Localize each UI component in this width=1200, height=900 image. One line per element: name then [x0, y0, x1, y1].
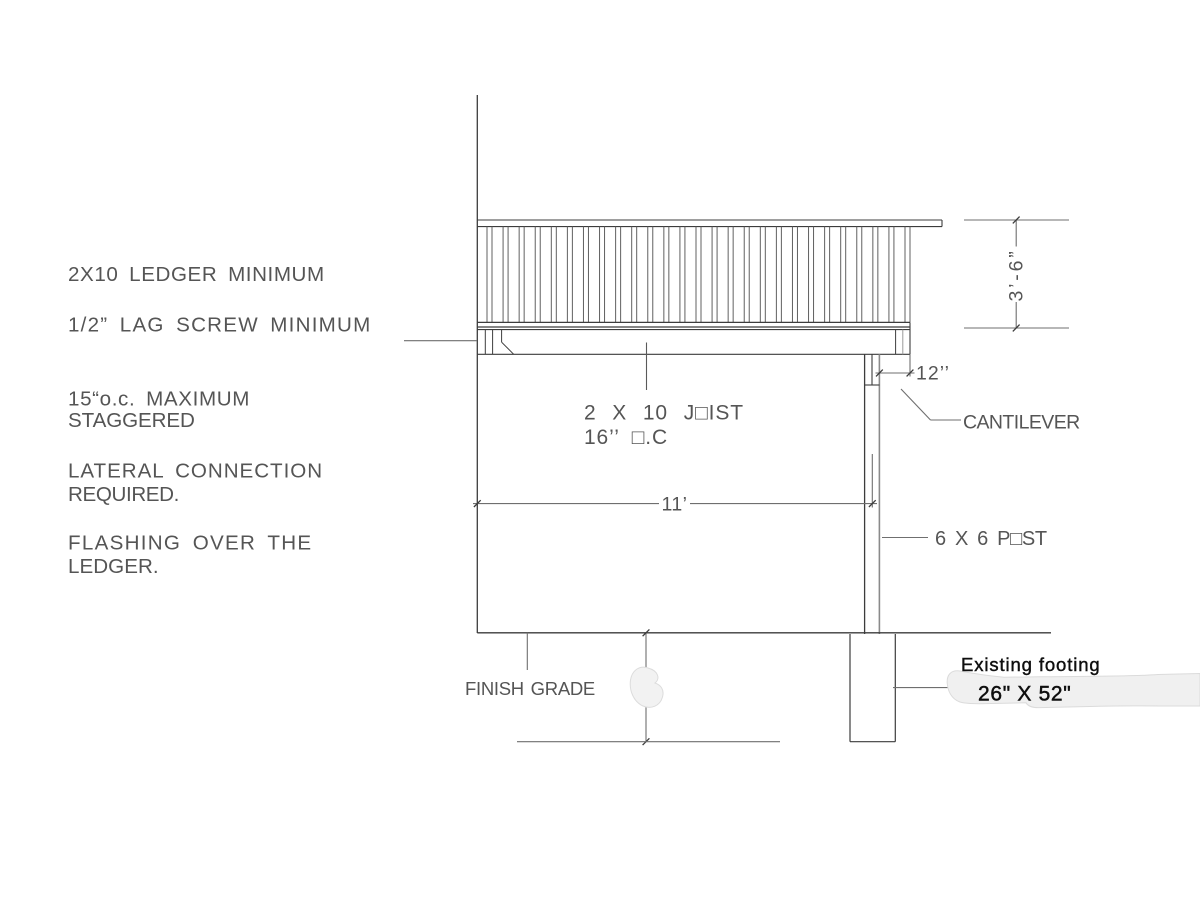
svg-text:FLASHING OVER THE: FLASHING OVER THE	[68, 532, 312, 555]
svg-text:6 X 6 P□ST: 6 X 6 P□ST	[935, 528, 1047, 550]
svg-text:STAGGERED: STAGGERED	[68, 409, 195, 432]
svg-text:2X10 LEDGER MINIMUM: 2X10 LEDGER MINIMUM	[68, 263, 325, 286]
svg-text:LEDGER.: LEDGER.	[68, 555, 159, 578]
svg-text:1/2” LAG SCREW MINIMUM: 1/2” LAG SCREW MINIMUM	[68, 314, 372, 337]
svg-text:26" X 52": 26" X 52"	[978, 682, 1071, 705]
svg-text:FINISH GRADE: FINISH GRADE	[465, 678, 595, 699]
svg-text:CANTILEVER: CANTILEVER	[963, 412, 1080, 434]
svg-text:3’-6”: 3’-6”	[1006, 248, 1028, 301]
svg-text:11’: 11’	[662, 494, 688, 516]
svg-text:15“o.c. MAXIMUM: 15“o.c. MAXIMUM	[68, 388, 250, 411]
svg-text:2 X 10 J□IST: 2 X 10 J□IST	[584, 402, 744, 425]
svg-text:REQUIRED.: REQUIRED.	[68, 483, 179, 506]
svg-text:16’’ □.C: 16’’ □.C	[584, 426, 668, 449]
svg-text:LATERAL CONNECTION: LATERAL CONNECTION	[68, 460, 323, 483]
svg-text:12’’: 12’’	[916, 363, 950, 385]
svg-text:Existing footing: Existing footing	[961, 654, 1101, 675]
